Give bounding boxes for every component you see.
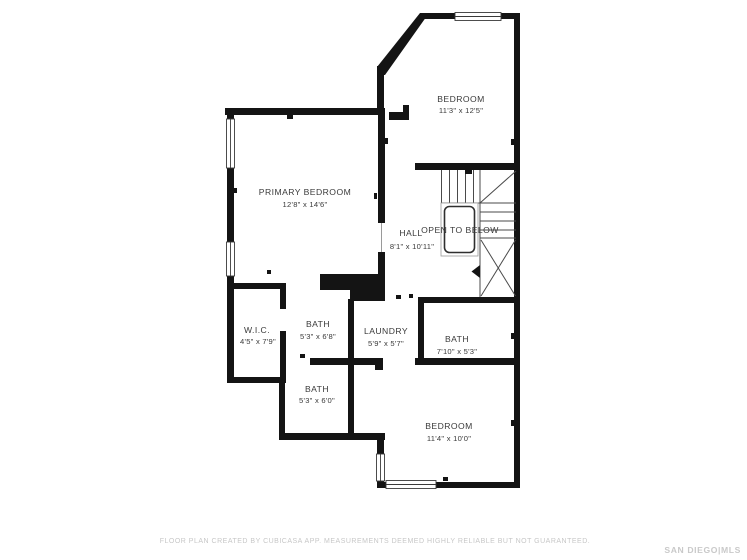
wall-block-upper xyxy=(320,274,385,290)
wall-wic-right-lower xyxy=(280,331,286,383)
tick xyxy=(511,333,514,339)
wall-bedroom-door-stub-cap xyxy=(403,105,409,113)
mls-watermark: SAN DIEGO|MLS xyxy=(664,545,741,555)
window-bedroom-left xyxy=(377,454,385,481)
room-name: BEDROOM xyxy=(425,421,473,431)
tick xyxy=(396,295,401,299)
wall-bath-right-bottom xyxy=(415,358,520,365)
room-name: HALL xyxy=(399,228,422,238)
wall-bath-lower-left xyxy=(279,377,285,440)
room-label-bath-lower: BATH 5'3" x 6'0" xyxy=(299,384,335,405)
room-label-bath-upper: BATH 5'3" x 6'8" xyxy=(300,319,336,341)
room-label-laundry: LAUNDRY 5'9" x 5'7" xyxy=(364,326,408,348)
room-dims: 5'9" x 5'7" xyxy=(368,339,404,348)
floor-plan-canvas: BEDROOM 11'3" x 12'5" PRIMARY BEDROOM 12… xyxy=(0,0,747,560)
stair-winder-diagonal xyxy=(480,171,516,203)
room-dims: 5'3" x 6'0" xyxy=(299,396,335,405)
room-dims: 11'4" x 10'0" xyxy=(427,434,471,443)
open-to-below-label: OPEN TO BELOW xyxy=(421,225,499,235)
wall-wic-right-upper xyxy=(280,283,286,309)
room-dims: 11'3" x 12'5" xyxy=(439,106,483,115)
wall-bath-divider-cap xyxy=(375,358,383,370)
wall-wic-bottom xyxy=(227,377,285,383)
wall-left-upper xyxy=(377,66,384,115)
window-left-upper xyxy=(227,119,235,168)
tick xyxy=(385,138,388,144)
room-name: BATH xyxy=(445,334,469,344)
tick xyxy=(465,170,472,174)
room-label-primary-bedroom: PRIMARY BEDROOM 12'8" x 14'6" xyxy=(259,187,351,209)
room-label-bedroom-top: BEDROOM 11'3" x 12'5" xyxy=(437,94,485,115)
wall-bath-right-top xyxy=(418,297,518,303)
tick xyxy=(511,420,514,426)
room-name: LAUNDRY xyxy=(364,326,408,336)
window-left-lower xyxy=(227,242,235,276)
footer-disclaimer: FLOOR PLAN CREATED BY CUBICASA APP. MEAS… xyxy=(160,538,590,545)
room-name: BEDROOM xyxy=(437,94,485,104)
tick xyxy=(374,193,377,199)
wall-right xyxy=(514,13,520,488)
room-name: PRIMARY BEDROOM xyxy=(259,187,351,197)
tick xyxy=(511,139,514,145)
wall-bath-divider xyxy=(310,358,382,365)
wall-laundry-right xyxy=(418,297,424,361)
floor-plan-page: BEDROOM 11'3" x 12'5" PRIMARY BEDROOM 12… xyxy=(0,0,747,560)
wall-primary-top xyxy=(225,108,385,115)
tick xyxy=(409,294,413,298)
room-name: BATH xyxy=(306,319,330,329)
room-dims: 7'10" x 5'3" xyxy=(437,347,477,356)
wall-hall-west-lower xyxy=(378,252,385,278)
tick xyxy=(267,270,271,274)
room-label-open-to-below: OPEN TO BELOW xyxy=(421,225,499,235)
tick xyxy=(287,115,293,119)
wall-wic-top xyxy=(227,283,286,289)
wall-bedroom-door-stub xyxy=(389,112,409,120)
tick xyxy=(443,477,448,481)
wall-bath-lower-bottom xyxy=(279,433,385,440)
tick xyxy=(300,354,305,358)
tick xyxy=(282,400,285,405)
room-dims: 12'8" x 14'6" xyxy=(283,200,328,209)
room-dims: 8'1" x 10'11" xyxy=(390,242,434,251)
tick xyxy=(234,188,237,193)
room-name: W.I.C. xyxy=(244,325,270,335)
wall-hall-west-upper xyxy=(378,113,385,223)
room-dims: 4'5" x 7'9" xyxy=(240,337,276,346)
room-name: BATH xyxy=(305,384,329,394)
room-dims: 5'3" x 6'8" xyxy=(300,332,336,341)
wall-block-lower xyxy=(350,288,385,301)
room-label-wic: W.I.C. 4'5" x 7'9" xyxy=(240,325,276,346)
wall-stairs-top xyxy=(415,163,520,170)
room-labels: BEDROOM 11'3" x 12'5" PRIMARY BEDROOM 12… xyxy=(240,94,499,443)
door-marker xyxy=(472,265,481,278)
window-top xyxy=(455,13,501,21)
window-bottom xyxy=(386,481,436,489)
room-label-bedroom-bottom: BEDROOM 11'4" x 10'0" xyxy=(425,421,473,443)
wall-diagonal xyxy=(377,13,429,75)
room-label-bath-right: BATH 7'10" x 5'3" xyxy=(437,334,477,356)
wall-central xyxy=(348,299,354,435)
